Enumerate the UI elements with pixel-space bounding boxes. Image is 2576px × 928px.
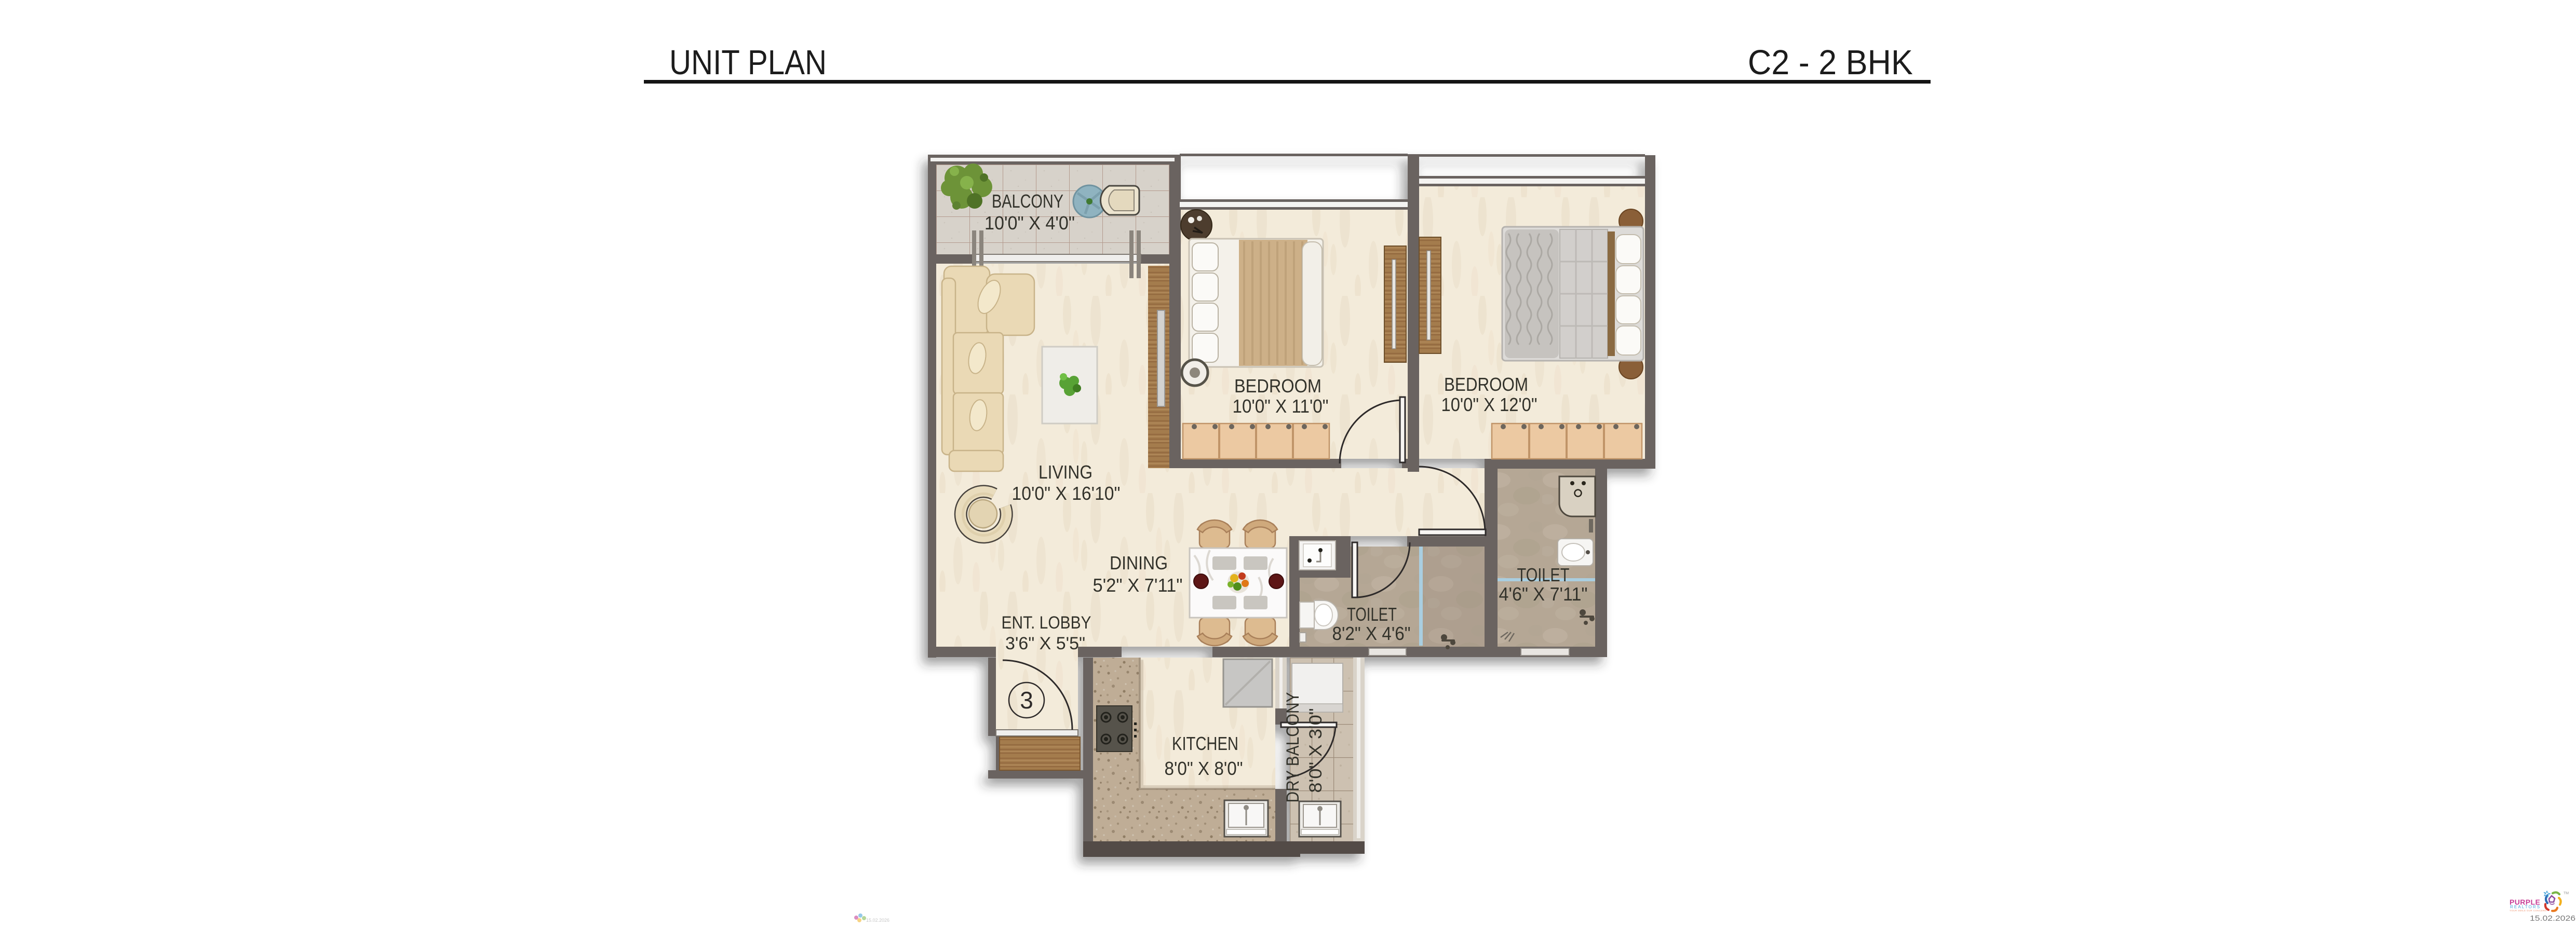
svg-text:BALCONY: BALCONY (992, 190, 1063, 212)
svg-text:UNIT PLAN: UNIT PLAN (669, 43, 827, 82)
svg-text:BEDROOM: BEDROOM (1444, 374, 1528, 395)
svg-text:TOILET: TOILET (1517, 564, 1570, 585)
svg-text:10'0" X 12'0": 10'0" X 12'0" (1441, 394, 1537, 415)
svg-text:REALTORS: REALTORS (2510, 905, 2541, 909)
svg-text:5'2" X 7'11": 5'2" X 7'11" (1093, 575, 1183, 596)
svg-text:8'2" X 4'6": 8'2" X 4'6" (1332, 623, 1411, 644)
svg-text:DINING: DINING (1110, 552, 1168, 574)
svg-text:15.02.2026: 15.02.2026 (866, 918, 889, 923)
svg-text:LIVING: LIVING (1039, 461, 1093, 483)
svg-text:C2 - 2 BHK: C2 - 2 BHK (1748, 43, 1913, 82)
svg-text:10'0" X 11'0": 10'0" X 11'0" (1233, 395, 1329, 417)
svg-text:DRY BALCONY: DRY BALCONY (1283, 692, 1303, 803)
svg-text:15.02.2026: 15.02.2026 (2530, 914, 2575, 923)
svg-text:10'0" X 4'0": 10'0" X 4'0" (984, 212, 1075, 234)
svg-text:KITCHEN: KITCHEN (1172, 733, 1238, 754)
svg-text:10'0" X 16'10": 10'0" X 16'10" (1012, 483, 1121, 504)
svg-text:8'0" X 8'0": 8'0" X 8'0" (1165, 758, 1243, 779)
svg-text:3'6" X 5'5": 3'6" X 5'5" (1005, 634, 1085, 653)
svg-text:8'0" X 3'0": 8'0" X 3'0" (1306, 708, 1326, 793)
svg-text:BEDROOM: BEDROOM (1234, 375, 1321, 397)
svg-text:3: 3 (1020, 687, 1033, 714)
svg-text:ENT. LOBBY: ENT. LOBBY (1002, 613, 1091, 633)
svg-text:TM: TM (2564, 892, 2569, 895)
svg-text:4'6" X 7'11": 4'6" X 7'11" (1499, 583, 1588, 605)
svg-text:YOUR SMILE OUR CONCERN: YOUR SMILE OUR CONCERN (2510, 909, 2546, 912)
svg-text:TOILET: TOILET (1347, 604, 1397, 625)
